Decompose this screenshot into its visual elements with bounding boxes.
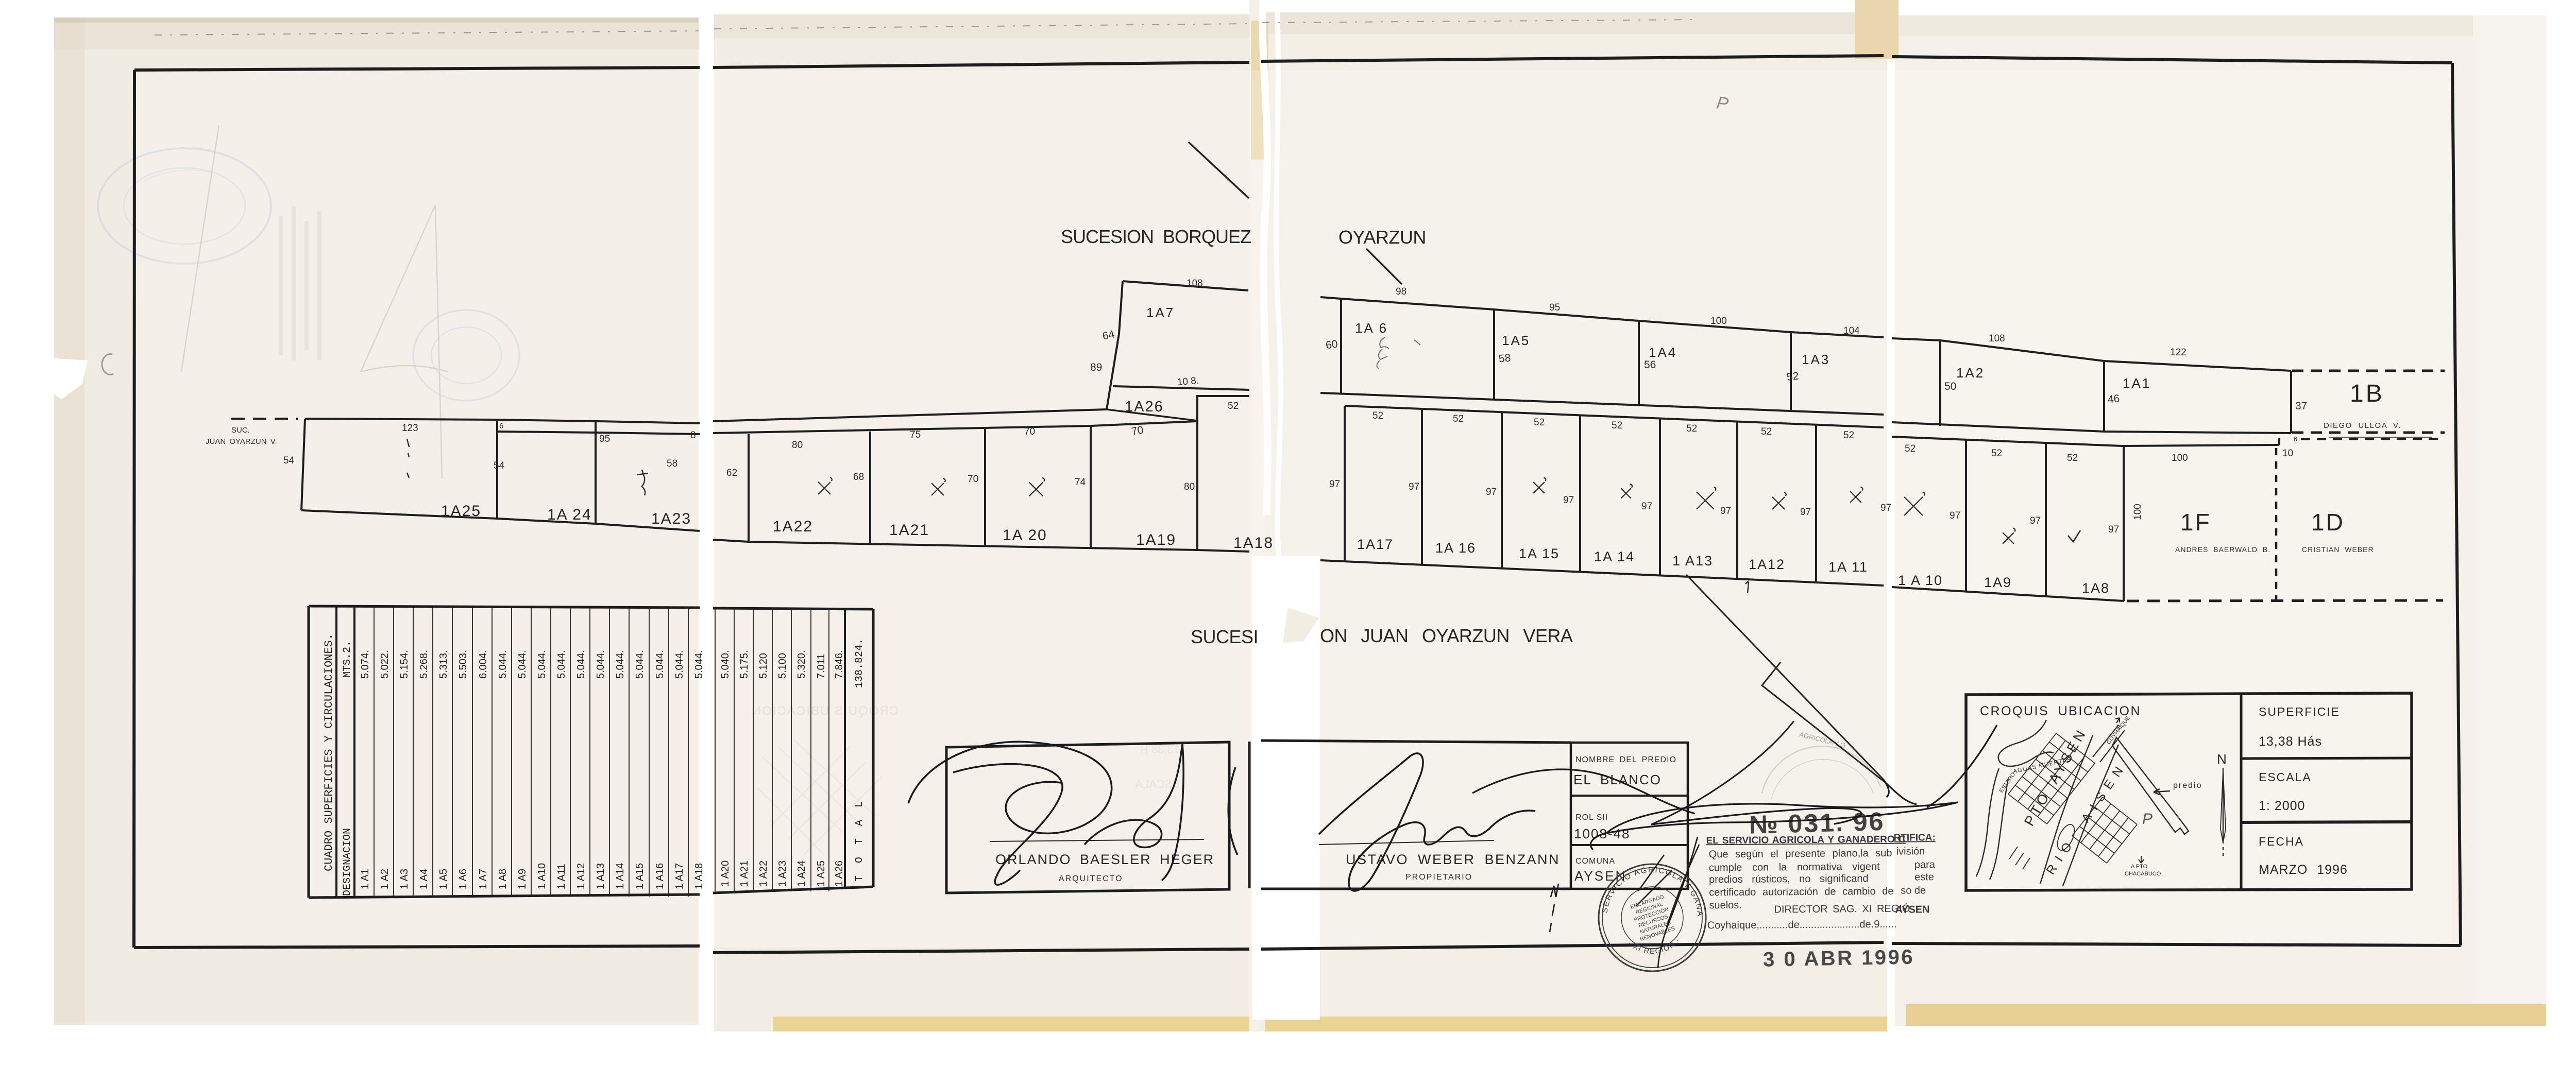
svg-text:97: 97 [2030,515,2041,526]
svg-text:6: 6 [2294,435,2297,443]
svg-text:95: 95 [599,434,610,444]
svg-text:97: 97 [1329,479,1340,490]
svg-text:PROPIETARIO: PROPIETARIO [1405,873,1472,882]
svg-text:5.268.: 5.268. [418,650,430,679]
svg-text:1 A15: 1 A15 [634,863,646,889]
svg-text:1A9: 1A9 [1984,575,2012,590]
svg-text:ANDRES BAERWALD B.: ANDRES BAERWALD B. [2175,545,2270,554]
svg-text:8: 8 [690,430,696,441]
svg-text:74: 74 [1075,477,1086,488]
svg-text:1 A22: 1 A22 [758,861,769,887]
svg-text:80: 80 [792,440,803,451]
svg-text:cumple con la normativa vigent: cumple con la normativa vigent [1709,861,1880,873]
svg-text:CROQUIS UBICACION: CROQUIS UBICACION [751,704,899,718]
svg-text:37: 37 [2295,400,2307,412]
svg-text:suelos.: suelos. [1709,900,1742,911]
svg-text:52: 52 [1228,401,1239,411]
svg-text:138.824.: 138.824. [854,639,866,688]
svg-text:52: 52 [1905,443,1916,454]
svg-text:1 A23: 1 A23 [777,861,788,887]
svg-text:5.503.: 5.503. [457,650,469,679]
svg-text:5.044.: 5.044. [615,650,626,679]
svg-text:104: 104 [1843,325,1860,336]
svg-text:5.044.: 5.044. [634,650,646,679]
svg-text:predio: predio [2173,781,2202,790]
svg-text:1 A1: 1 A1 [360,869,371,889]
svg-text:1A 11: 1A 11 [1828,559,1868,575]
svg-text:97: 97 [1950,510,1960,521]
svg-text:MTS.2.: MTS.2. [342,641,353,678]
svg-text:46: 46 [2107,392,2121,405]
svg-text:97: 97 [1800,507,1811,518]
svg-text:54: 54 [283,455,295,466]
svg-text:95: 95 [1549,302,1560,313]
svg-text:CROQUIS UBICACION: CROQUIS UBICACION [1980,704,2141,718]
svg-text:52: 52 [1372,410,1383,421]
svg-text:5.044.: 5.044. [674,650,685,679]
svg-text:1 A11: 1 A11 [556,864,567,889]
svg-text:52: 52 [1453,414,1464,424]
svg-text:SUCESION BORQUEZ: SUCESION BORQUEZ [1061,226,1251,247]
svg-text:1B: 1B [2350,380,2384,407]
svg-text:1 A6: 1 A6 [457,869,469,889]
svg-text:100: 100 [1710,316,1727,326]
svg-text:CUADRO SUPERFICIES Y CIRCULACI: CUADRO SUPERFICIES Y CIRCULACIONES. [323,633,335,871]
svg-text:5.120: 5.120 [758,653,769,679]
svg-text:FECHA: FECHA [2259,835,2304,848]
svg-text:1A8: 1A8 [2082,580,2110,596]
svg-text:5.022.: 5.022. [379,650,391,679]
svg-text:100: 100 [2132,504,2143,520]
svg-text:5.044.: 5.044. [654,650,666,679]
svg-text:52: 52 [2067,453,2078,463]
svg-text:62: 62 [726,468,737,478]
svg-text:1A2: 1A2 [1956,365,1985,381]
svg-text:5.044.: 5.044. [693,650,705,679]
svg-text:60: 60 [1325,338,1338,351]
svg-text:SUCESI: SUCESI [1191,626,1258,647]
svg-text:DESIGNACION: DESIGNACION [342,828,353,896]
svg-text:P: P [2142,811,2153,828]
svg-text:97: 97 [1409,481,1419,492]
svg-text:1A21: 1A21 [889,522,929,539]
svg-text:5.040.: 5.040. [720,650,731,679]
svg-text:70: 70 [1024,426,1035,437]
svg-text:1A12: 1A12 [1749,557,1785,572]
svg-text:DIRECTOR SAG. XI REGIÓ: DIRECTOR SAG. XI REGIÓ [1774,903,1910,916]
svg-text:122: 122 [2170,347,2187,358]
svg-text:1 A12: 1 A12 [575,863,587,889]
svg-text:52: 52 [1761,426,1772,437]
svg-text:ON JUAN OYARZUN VERA: ON JUAN OYARZUN VERA [1320,625,1573,646]
svg-text:1A 20: 1A 20 [1003,527,1047,544]
svg-text:COMUNA: COMUNA [1575,857,1615,866]
svg-text:1A23: 1A23 [651,510,691,527]
svg-text:1 A8: 1 A8 [497,869,509,889]
svg-text:ARQUITECTO: ARQUITECTO [1059,874,1123,883]
svg-text:58: 58 [1498,352,1512,365]
svg-text:80: 80 [1184,481,1195,492]
svg-text:58: 58 [667,458,677,469]
svg-text:5.044.: 5.044. [536,650,548,679]
svg-text:1 A13: 1 A13 [595,863,606,889]
svg-text:1 A25: 1 A25 [816,861,827,887]
svg-text:1A26: 1A26 [1125,399,1164,415]
svg-text:1 A3: 1 A3 [399,869,410,889]
svg-text:97: 97 [2108,524,2119,535]
svg-text:1A 24: 1A 24 [547,506,592,523]
svg-text:52: 52 [1612,420,1622,431]
svg-text:1 A4: 1 A4 [418,869,430,889]
svg-text:Coyhaique,..........de........: Coyhaique,..........de..................… [1707,919,1897,932]
svg-text:certificado autorización de ca: certificado autorización de cambio de [1709,886,1893,899]
svg-text:1A 15: 1A 15 [1519,546,1560,561]
svg-text:1: 2000: 1: 2000 [2259,799,2305,813]
svg-text:A PTO: A PTO [2131,864,2148,870]
svg-text:1A3: 1A3 [1802,352,1830,367]
svg-text:70: 70 [968,474,978,485]
svg-text:1 A7: 1 A7 [478,869,489,889]
svg-text:ORLANDO BAESLER HEGER: ORLANDO BAESLER HEGER [995,852,1214,867]
svg-text:52: 52 [1686,423,1697,434]
svg-text:1 A20: 1 A20 [720,861,731,887]
svg-text:123: 123 [402,423,418,434]
svg-text:75: 75 [910,429,921,440]
svg-text:52: 52 [1991,448,2002,459]
svg-text:1 A2: 1 A2 [379,869,391,889]
svg-text:5.044.: 5.044. [556,650,567,679]
svg-text:10: 10 [2282,448,2293,459]
svg-text:1 A24: 1 A24 [796,861,807,887]
svg-text:1A7: 1A7 [1146,305,1175,320]
svg-text:98: 98 [1396,286,1406,297]
svg-text:1 A26: 1 A26 [834,861,845,887]
svg-text:CHACABUCO: CHACABUCO [2125,871,2161,877]
svg-text:50: 50 [1944,381,1956,392]
svg-text:13,38 H: 13,38 H [1140,743,1180,756]
svg-text:5.154.: 5.154. [399,650,410,679]
svg-text:5.044.: 5.044. [575,650,587,679]
svg-text:ROL SII: ROL SII [1575,813,1608,822]
svg-text:1A25: 1A25 [441,503,481,520]
svg-text:1 A13: 1 A13 [1672,553,1713,569]
svg-text:68: 68 [853,472,864,483]
svg-text:5.074.: 5.074. [360,650,371,679]
svg-text:1 A16: 1 A16 [654,863,666,889]
svg-text:10 8.: 10 8. [1177,375,1199,388]
svg-text:3 0 ABR 1996: 3 0 ABR 1996 [1763,945,1915,971]
svg-text:OYARZUN: OYARZUN [1338,227,1426,248]
svg-text:52: 52 [1786,370,1800,383]
svg-text:SUC.: SUC. [231,426,250,435]
svg-text:5.320.: 5.320. [796,650,807,679]
svg-text:este: este [1914,871,1934,883]
svg-text:T O T A L: T O T A L [854,798,866,882]
svg-text:54: 54 [494,460,505,471]
svg-text:52: 52 [1843,430,1854,441]
svg-text:N: N [2217,751,2227,767]
svg-text:1 A21: 1 A21 [739,861,750,887]
svg-text:JUAN OYARZUN V.: JUAN OYARZUN V. [206,437,277,446]
svg-text:1 A14: 1 A14 [615,863,626,889]
svg-text:97: 97 [1563,495,1574,506]
svg-text:1A4: 1A4 [1649,345,1677,360]
svg-text:5.313.: 5.313. [438,650,449,679]
svg-text:7.846.: 7.846. [834,650,845,679]
svg-text:para: para [1914,859,1936,870]
svg-text:5.175.: 5.175. [739,650,750,679]
svg-text:1 A10: 1 A10 [536,863,548,889]
svg-text:1A 6: 1A 6 [1355,320,1388,336]
svg-text:MARZO 1996: MARZO 1996 [2259,863,2348,877]
svg-text:1A17: 1A17 [1357,537,1394,552]
svg-text:5.044.: 5.044. [595,650,606,679]
svg-text:DIEGO ULLOA V.: DIEGO ULLOA V. [2324,421,2401,430]
svg-text:1 A17: 1 A17 [674,863,685,889]
svg-text:so de: so de [1901,885,1926,896]
svg-text:1A 14: 1A 14 [1594,549,1635,564]
svg-text:AYSEN: AYSEN [1895,904,1929,915]
svg-text:56: 56 [1644,359,1656,371]
svg-text:1A1: 1A1 [2123,375,2151,391]
svg-text:5.100: 5.100 [777,653,788,679]
svg-text:1A22: 1A22 [773,518,813,535]
svg-text:52: 52 [1534,417,1545,428]
svg-text:CRISTIAN WEBER: CRISTIAN WEBER [2302,545,2374,554]
svg-text:1F: 1F [2180,509,2211,536]
svg-text:1D: 1D [2311,509,2345,536]
svg-text:1 A9: 1 A9 [517,869,528,889]
svg-text:1 A5: 1 A5 [438,869,449,889]
svg-text:ESCALA: ESCALA [2259,770,2312,784]
svg-text:Que según el presente plano,la: Que según el presente plano,la sub [1709,848,1892,860]
svg-text:1A19: 1A19 [1136,531,1176,548]
svg-text:1 A 10: 1 A 10 [1898,573,1943,588]
svg-text:13,38 Hás: 13,38 Hás [2259,734,2322,749]
svg-text:70: 70 [1130,424,1144,438]
svg-text:97: 97 [1880,503,1891,513]
svg-text:97: 97 [1486,487,1497,497]
svg-text:5.044.: 5.044. [497,650,509,679]
svg-text:ivisión: ivisión [1896,846,1925,857]
svg-text:6.004.: 6.004. [478,650,489,679]
svg-text:100: 100 [2172,453,2188,463]
svg-text:97: 97 [1720,506,1731,517]
svg-text:1A18: 1A18 [1233,535,1274,552]
svg-text:NOMBRE DEL PREDIO: NOMBRE DEL PREDIO [1575,755,1676,764]
svg-text:5.044.: 5.044. [517,650,528,679]
svg-text:89: 89 [1090,362,1102,373]
svg-text:97: 97 [1641,501,1652,512]
svg-text:RTIFICA:: RTIFICA: [1893,832,1935,844]
svg-text:USTAVO WEBER BENZANN: USTAVO WEBER BENZANN [1346,852,1560,867]
svg-text:108: 108 [1989,333,2005,344]
svg-text:108: 108 [1187,278,1203,289]
svg-text:1A 16: 1A 16 [1435,540,1476,556]
svg-text:6: 6 [499,422,503,431]
svg-text:1 A18: 1 A18 [693,863,705,889]
svg-text:1A5: 1A5 [1502,333,1530,348]
svg-text:SUPERFICIE: SUPERFICIE [2259,705,2340,718]
svg-text:predios rústicos, no significa: predios rústicos, no significand [1709,873,1869,885]
svg-text:7.011: 7.011 [816,653,827,679]
